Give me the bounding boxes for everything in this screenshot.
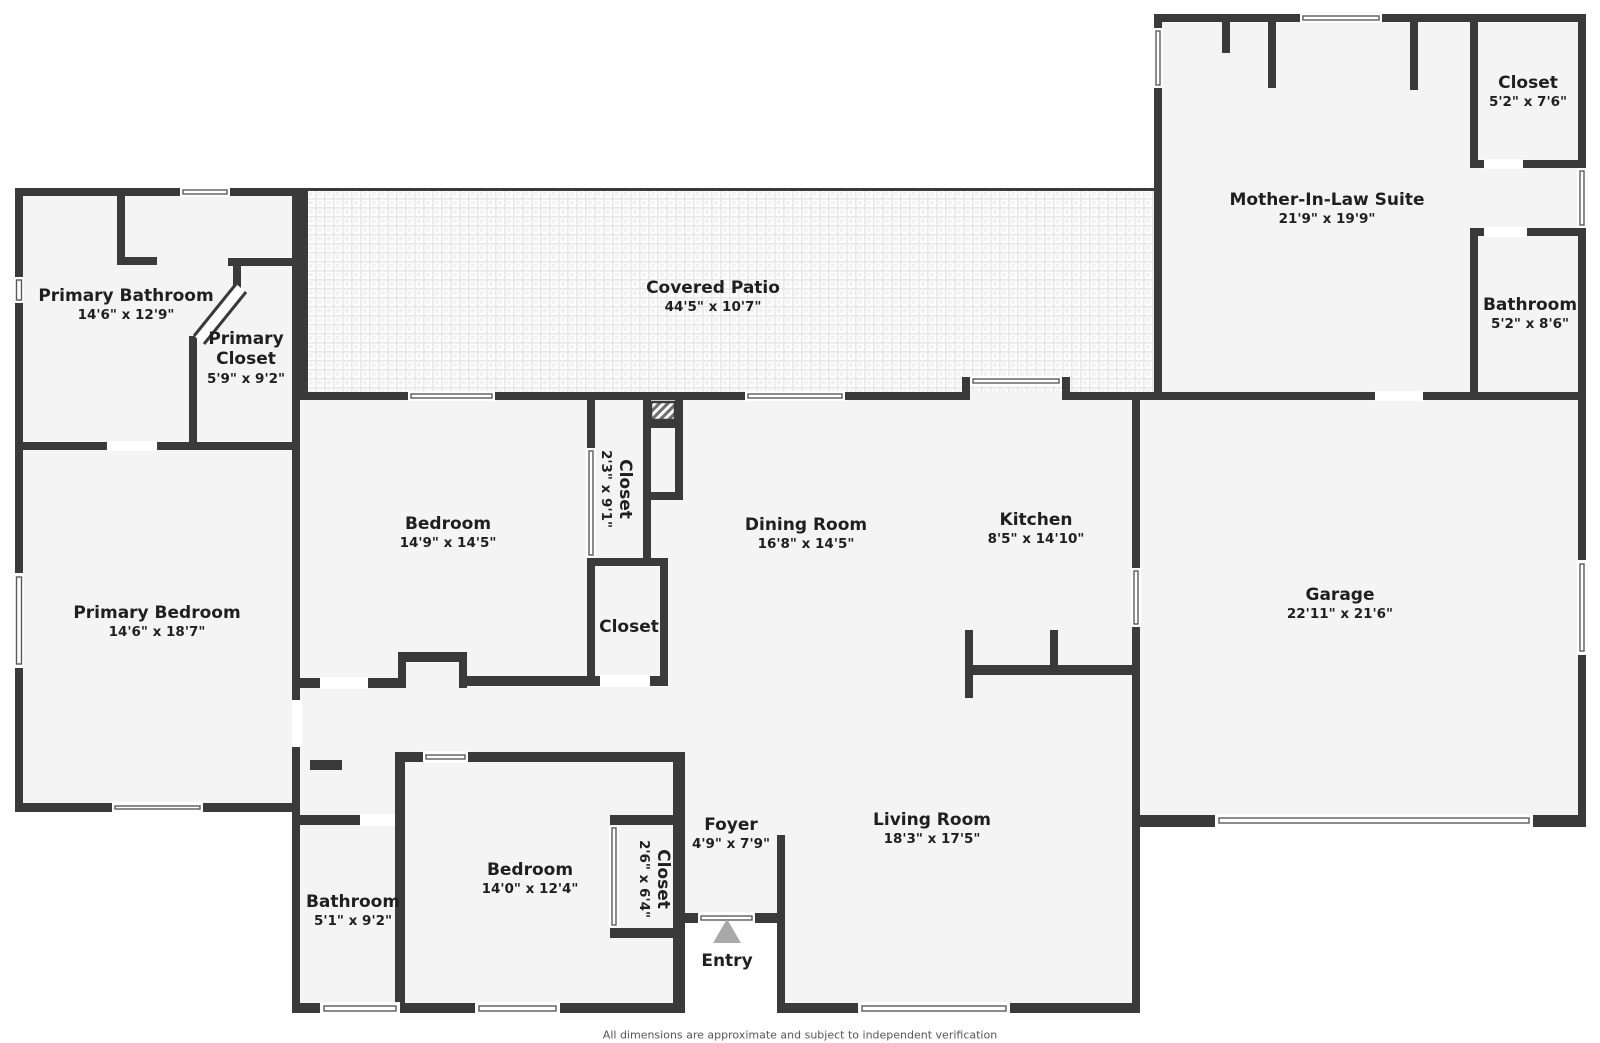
room-label-closet-bottom: Closet 2'6" x 6'4": [635, 840, 673, 918]
room-label-bathroom-bottom: Bathroom 5'1" x 9'2": [306, 892, 400, 930]
disclaimer-text: All dimensions are approximate and subje…: [603, 1029, 997, 1042]
room-label-bedroom-middle: Bedroom 14'9" x 14'5": [400, 514, 497, 552]
room-fills: [15, 14, 1586, 1013]
room-label-garage: Garage 22'11" x 21'6": [1287, 585, 1393, 623]
room-label-hall-closet: Closet 2'3" x 9'1": [597, 450, 635, 528]
room-label-mother-in-law-suite: Mother-In-Law Suite 21'9" x 19'9": [1229, 190, 1424, 228]
room-label-mil-closet: Closet 5'2" x 7'6": [1489, 73, 1567, 111]
room-label-mil-bathroom: Bathroom 5'2" x 8'6": [1483, 295, 1577, 333]
room-label-primary-closet: Primary Closet 5'9" x 9'2": [203, 329, 289, 387]
room-label-entry: Entry: [701, 951, 752, 971]
room-label-living-room: Living Room 18'3" x 17'5": [873, 810, 991, 848]
room-label-kitchen: Kitchen 8'5" x 14'10": [988, 510, 1085, 548]
room-label-foyer: Foyer 4'9" x 7'9": [692, 815, 770, 853]
utility-hatch-box-icon: [651, 402, 675, 420]
room-label-primary-bedroom: Primary Bedroom 14'6" x 18'7": [73, 603, 240, 641]
room-label-middle-closet: Closet: [599, 617, 659, 637]
room-label-dining-room: Dining Room 16'8" x 14'5": [745, 515, 867, 553]
room-label-primary-bathroom: Primary Bathroom 14'6" x 12'9": [38, 286, 213, 324]
floorplan: Primary Bathroom 14'6" x 12'9" Primary C…: [0, 0, 1600, 1043]
room-label-covered-patio: Covered Patio 44'5" x 10'7": [646, 278, 780, 316]
room-label-bedroom-bottom: Bedroom 14'0" x 12'4": [482, 860, 579, 898]
